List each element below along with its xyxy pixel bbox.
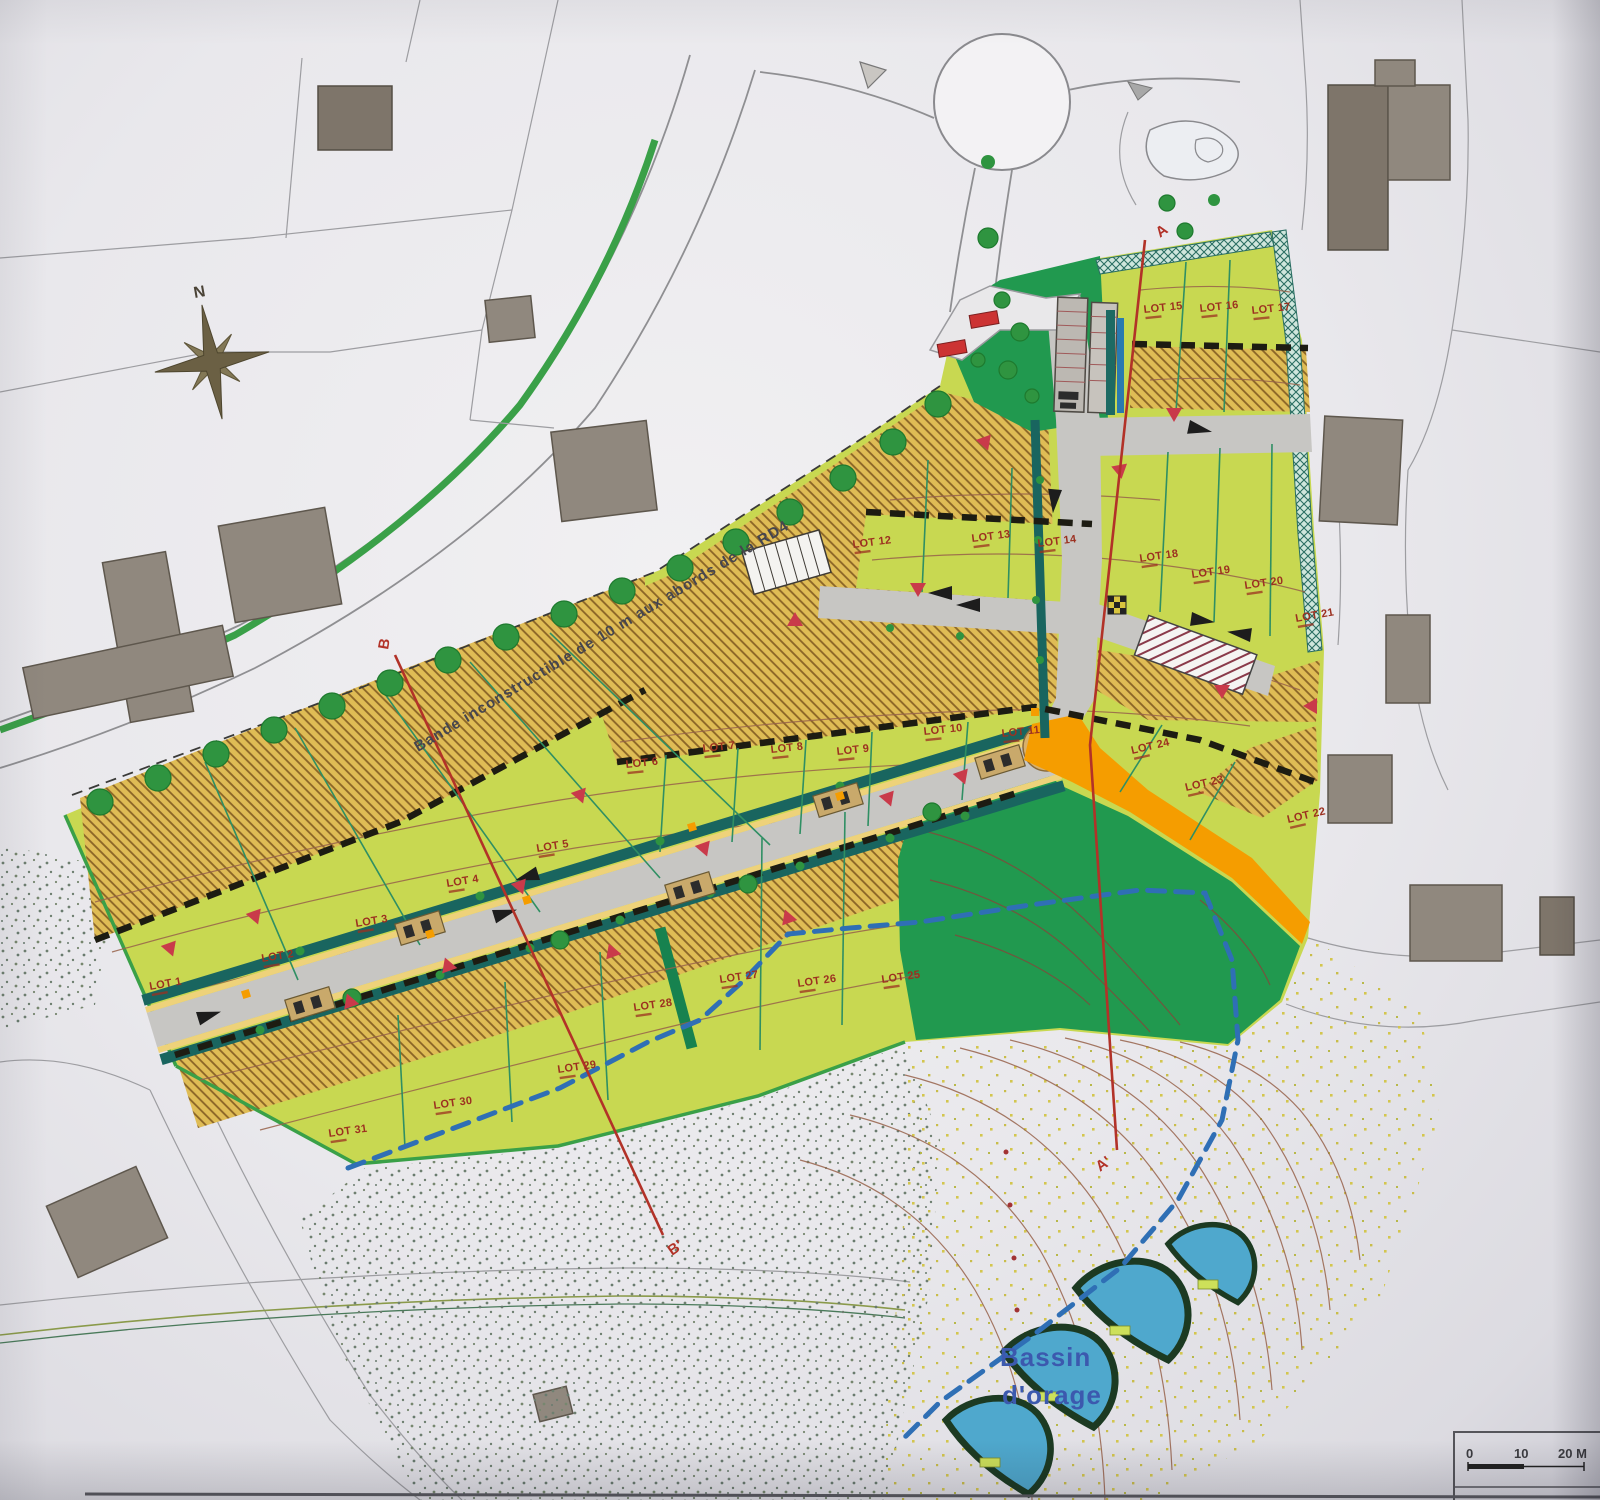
context-shape	[860, 62, 886, 88]
compass-rose: N	[141, 274, 279, 429]
section-marker-b: B	[375, 637, 394, 651]
internal-road-top	[1086, 414, 1312, 456]
scale-tick-20: 20 M	[1558, 1446, 1587, 1461]
svg-text:d'orage: d'orage	[1002, 1380, 1102, 1410]
paper-edge	[85, 1494, 1600, 1497]
entrance-swale-strip	[1117, 318, 1124, 413]
svg-text:Bassin: Bassin	[1000, 1342, 1091, 1372]
scale-tick-0: 0	[1466, 1446, 1473, 1461]
entrance-hedge-strip	[1106, 310, 1115, 415]
site-plan-photo: B B' A A' Bande inconstructible de 10 m …	[0, 0, 1600, 1500]
context-shape	[1128, 82, 1152, 100]
scale-tick-10: 10	[1514, 1446, 1528, 1461]
site-plan-map: B B' A A' Bande inconstructible de 10 m …	[0, 0, 1600, 1500]
north-label: N	[192, 283, 206, 302]
gate-checker-square	[1108, 596, 1126, 614]
scale-bar: 0 10 20 M	[1466, 1446, 1587, 1471]
section-marker-a: A	[1153, 221, 1172, 241]
compass-cardinal-points	[145, 295, 279, 429]
